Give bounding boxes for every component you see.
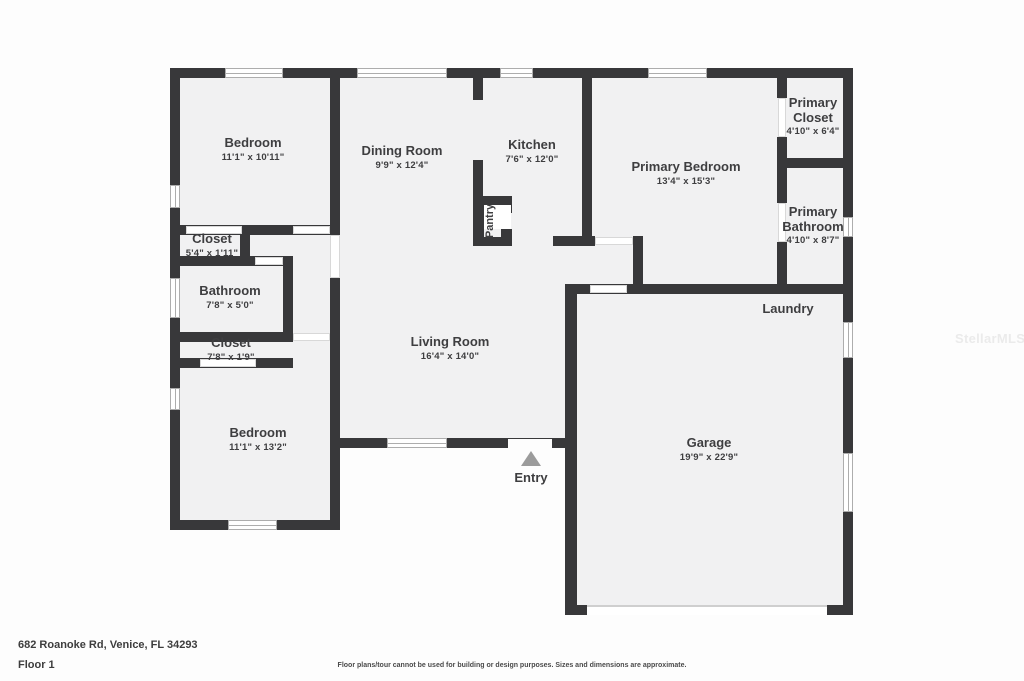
door-opening bbox=[330, 235, 340, 278]
room-label-garage: Garage 19'9" x 22'9" bbox=[680, 436, 738, 463]
room-label-dining-room: Dining Room 9'9" x 12'4" bbox=[362, 144, 443, 171]
floorplan-canvas: Bedroom 11'1" x 10'11" Dining Room 9'9" … bbox=[0, 0, 1024, 681]
entry-arrow-icon bbox=[521, 451, 541, 466]
window bbox=[500, 68, 533, 78]
room-label-bedroom-2: Bedroom 11'1" x 13'2" bbox=[229, 426, 287, 453]
wall bbox=[501, 229, 512, 246]
window bbox=[387, 438, 447, 448]
disclaimer-text: Floor plans/tour cannot be used for buil… bbox=[0, 662, 1024, 669]
room-label-primary-closet: Primary Closet 4'10" x 6'4" bbox=[773, 96, 853, 137]
window bbox=[843, 453, 853, 512]
floorplan-page: { "floorplan": { "rooms": [ {"name": "Be… bbox=[0, 0, 1024, 681]
entry-label: Entry bbox=[514, 470, 547, 485]
wall bbox=[633, 236, 643, 294]
door-opening bbox=[255, 257, 283, 265]
wall bbox=[565, 284, 577, 615]
room-label-bedroom-1: Bedroom 11'1" x 10'11" bbox=[222, 136, 285, 163]
room-label-bathroom: Bathroom 7'8" x 5'0" bbox=[199, 284, 260, 311]
wall bbox=[777, 158, 853, 168]
window bbox=[357, 68, 447, 78]
wall bbox=[582, 68, 592, 246]
room-label-living-room: Living Room 16'4" x 14'0" bbox=[411, 335, 490, 362]
room-label-closet-1: Closet 5'4" x 1'11" bbox=[186, 232, 238, 259]
window bbox=[170, 388, 180, 410]
wall bbox=[777, 158, 787, 203]
wall bbox=[553, 236, 595, 246]
room-label-kitchen: Kitchen 7'6" x 12'0" bbox=[506, 138, 559, 165]
wall bbox=[777, 68, 787, 98]
window bbox=[225, 68, 283, 78]
room-fill bbox=[335, 73, 570, 443]
wall bbox=[473, 68, 483, 100]
watermark: StellarMLS bbox=[955, 331, 1024, 346]
wall bbox=[283, 256, 293, 342]
room-label-laundry: Laundry bbox=[762, 301, 813, 316]
wall bbox=[330, 278, 340, 530]
wall bbox=[330, 68, 340, 235]
room-label-pantry: Pantry bbox=[484, 204, 496, 238]
entry-opening bbox=[508, 439, 552, 448]
door-opening bbox=[293, 333, 330, 341]
room-label-closet-2: Closet 7'8" x 1'9" bbox=[207, 336, 254, 363]
address-label: 682 Roanoke Rd, Venice, FL 34293 bbox=[18, 639, 198, 651]
room-label-primary-bedroom: Primary Bedroom 13'4" x 15'3" bbox=[631, 160, 740, 187]
door-opening bbox=[293, 226, 330, 234]
window bbox=[170, 278, 180, 318]
window bbox=[228, 520, 277, 530]
door-opening bbox=[595, 237, 633, 245]
window bbox=[843, 322, 853, 358]
window bbox=[170, 185, 180, 208]
wall bbox=[777, 242, 787, 294]
window bbox=[648, 68, 707, 78]
door-opening bbox=[590, 285, 627, 293]
room-label-primary-bathroom: Primary Bathroom 4'10" x 8'7" bbox=[773, 205, 853, 246]
garage-door bbox=[587, 605, 827, 615]
